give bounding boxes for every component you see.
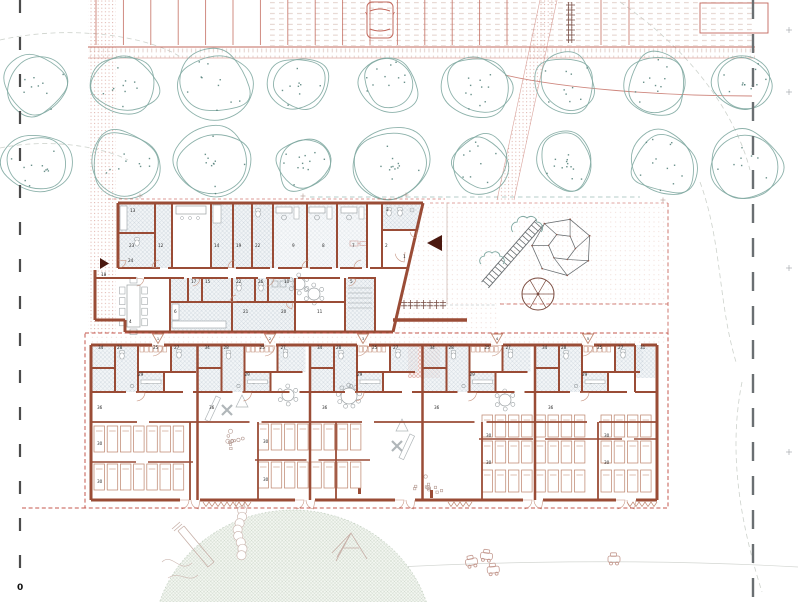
toys-cluster — [226, 429, 244, 450]
room-number-label: 18 — [101, 272, 107, 277]
room-number-label: 31 — [640, 345, 646, 350]
cot-icon — [258, 462, 269, 488]
toilet-icon — [177, 350, 182, 358]
tree-row-2 — [0, 125, 784, 199]
cot-icon — [574, 470, 585, 492]
room-number-label: 4 — [129, 319, 132, 324]
toilet-icon — [135, 238, 140, 246]
cot-icon — [535, 441, 546, 463]
cot-icon — [614, 415, 625, 437]
parking-paving — [268, 0, 755, 46]
cot-icon — [548, 470, 559, 492]
cot-icon — [107, 464, 118, 490]
room-number-label: 25 — [597, 345, 603, 350]
room-number-label: 34 — [205, 345, 211, 350]
room-number-label: 1 — [157, 337, 159, 341]
cot-icon — [107, 426, 118, 452]
cot-icon — [311, 462, 322, 488]
room-number-label: 25 — [372, 345, 378, 350]
cot-icon — [561, 415, 572, 437]
room-number-label: 29 — [245, 372, 251, 377]
room-number-label: 17 — [191, 279, 197, 284]
room-number-label: 6 — [174, 309, 177, 314]
room-number-label: 30 — [97, 441, 103, 446]
flag-garlands — [203, 502, 657, 507]
room-number-label: 22 — [236, 279, 242, 284]
room-number-label: 1 — [403, 254, 406, 259]
cot-icon — [627, 415, 638, 437]
room-number-label: 28 — [224, 345, 230, 350]
toilet-icon — [508, 350, 513, 358]
toy-car-icon — [487, 563, 500, 576]
cot-icon — [284, 424, 295, 450]
room-number-label: 22 — [255, 243, 261, 248]
room-number-label: 28 — [336, 345, 342, 350]
cot-icon — [147, 426, 158, 452]
toy-car-icon — [464, 554, 478, 568]
tree-icon — [631, 129, 697, 194]
toilet-icon — [451, 351, 456, 359]
site-plan-drawing: 1234513231214192298732124181715222610621… — [0, 0, 800, 602]
tree-icon — [4, 54, 68, 117]
cot-icon — [614, 441, 625, 463]
room-number-label: 19 — [236, 243, 242, 248]
room-number-label: 36 — [434, 405, 440, 410]
toilet-icon — [256, 209, 261, 217]
room-number-label: 2 — [385, 243, 388, 248]
tree-icon — [358, 58, 418, 112]
room-number-label: 25 — [153, 345, 159, 350]
cot-icon — [337, 462, 348, 488]
cot-icon — [298, 424, 309, 450]
room-number-label: 27 — [506, 345, 512, 350]
tree-icon — [537, 131, 591, 192]
cot-icon — [173, 426, 184, 452]
cot-icon — [641, 441, 652, 463]
room-number-label: 12 — [158, 243, 164, 248]
cot-icon — [627, 441, 638, 463]
toilet-icon — [226, 351, 231, 359]
cot-icon — [311, 424, 322, 450]
cot-icon — [561, 441, 572, 463]
room-number-label: 3 — [362, 337, 364, 341]
room-number-label: 36 — [97, 405, 103, 410]
cot-icon — [535, 470, 546, 492]
play-triangle — [396, 419, 408, 431]
room-number-label: 30 — [604, 460, 610, 465]
play-cross — [222, 405, 232, 415]
room-number-label: 28 — [117, 345, 123, 350]
room-number-label: 36 — [322, 405, 328, 410]
room-number-label: 30 — [97, 479, 103, 484]
cot-icon — [535, 415, 546, 437]
toilet-icon — [621, 350, 626, 358]
cot-icon — [522, 470, 533, 492]
cot-icon — [548, 415, 559, 437]
play-cross — [392, 441, 402, 451]
room-number-label: 25 — [485, 345, 491, 350]
cot-icon — [350, 462, 361, 488]
cot-icon — [508, 470, 519, 492]
cot-icon — [298, 462, 309, 488]
room-number-label: 34 — [98, 345, 104, 350]
toilet-icon — [259, 283, 264, 291]
room-number-label: 26 — [258, 279, 264, 284]
play-triangle — [236, 395, 248, 407]
toilet-icon — [120, 351, 125, 359]
room-number-label: 29 — [357, 372, 363, 377]
cot-icon — [614, 470, 625, 492]
cot-icon — [548, 441, 559, 463]
room-number-label: 14 — [214, 243, 220, 248]
level-marks — [786, 27, 792, 455]
room-number-label: 34 — [542, 345, 548, 350]
mound-playground — [153, 499, 620, 602]
tree-icon — [711, 128, 784, 198]
cot-icon — [324, 462, 335, 488]
cot-icon — [160, 426, 171, 452]
cot-icon — [160, 464, 171, 490]
room-number-label: 29 — [138, 372, 144, 377]
tree-icon — [267, 59, 329, 110]
room-number-label: 29 — [582, 372, 588, 377]
room-number-label: 10 — [284, 279, 290, 284]
toilet-icon — [398, 208, 403, 216]
cot-icon — [324, 424, 335, 450]
room-number-label: 28 — [561, 345, 567, 350]
site-plan-page: 1234513231214192298732124181715222610621… — [0, 0, 800, 602]
cot-icon — [147, 464, 158, 490]
cot-icon — [271, 424, 282, 450]
cot-icon — [134, 426, 145, 452]
room-number-label: 7 — [352, 243, 355, 248]
cot-icon — [350, 424, 361, 450]
room-number-label: 21 — [243, 309, 249, 314]
cot-icon — [522, 441, 533, 463]
toy-car-icon — [608, 553, 620, 565]
room-number-label: 30 — [486, 460, 492, 465]
room-number-label: 3 — [386, 207, 389, 212]
room-number-label: 34 — [430, 345, 436, 350]
tree-icon — [173, 125, 251, 197]
cot-icon — [561, 470, 572, 492]
tree-icon — [711, 56, 772, 110]
contour-lines — [0, 2, 798, 592]
cot-icon — [495, 470, 506, 492]
room-number-label: 28 — [449, 345, 455, 350]
cot-icon — [495, 441, 506, 463]
cot-icon — [601, 470, 612, 492]
room-number-label: 5 — [350, 279, 353, 284]
tree-icon — [276, 139, 331, 191]
room-number-label: 13 — [130, 208, 136, 213]
room-number-label: 8 — [322, 243, 325, 248]
walkway-paving — [91, 333, 668, 344]
survey-ticks — [138, 193, 666, 203]
cot-icon — [120, 426, 130, 452]
room-number-label: 5 — [587, 337, 589, 341]
room-number-label: 27 — [393, 345, 399, 350]
tree-icon — [624, 51, 685, 115]
cot-icon — [574, 441, 585, 463]
room-number-label: 30 — [486, 433, 492, 438]
cot-icon — [271, 462, 282, 488]
room-number-label: 36 — [209, 405, 215, 410]
round-table — [278, 384, 298, 406]
play-rod — [399, 434, 415, 460]
toy-car-icon — [480, 549, 494, 563]
toilet-icon — [564, 351, 569, 359]
cot-icon — [522, 415, 533, 437]
room-number-label: 36 — [548, 405, 554, 410]
room-number-label: 30 — [263, 477, 269, 482]
toilet-icon — [283, 350, 288, 358]
cot-icon — [508, 441, 519, 463]
room-number-label: 2 — [269, 337, 271, 341]
cot-icon — [94, 426, 105, 452]
room-number-label: 20 — [281, 309, 287, 314]
parking-area — [88, 0, 768, 58]
scale-origin-label: 0 — [17, 583, 23, 593]
room-number-label: 11 — [317, 309, 323, 314]
cot-icon — [173, 464, 184, 490]
room-number-label: 23 — [129, 243, 135, 248]
cot-icon — [641, 415, 652, 437]
room-number-label: 24 — [128, 258, 134, 263]
cot-icon — [627, 470, 638, 492]
room-number-label: 27 — [281, 345, 287, 350]
room-number-label: 15 — [205, 279, 211, 284]
cot-icon — [495, 415, 506, 437]
cot-icon — [120, 464, 130, 490]
cot-icon — [574, 415, 585, 437]
room-number-label: 30 — [604, 433, 610, 438]
room-number-label: 9 — [292, 243, 295, 248]
room-number-label: 25 — [260, 345, 266, 350]
room-number-label: 34 — [317, 345, 323, 350]
cot-icon — [94, 464, 105, 490]
tree-icon — [177, 48, 253, 120]
tree-row-1 — [4, 48, 772, 120]
tree-icon — [353, 128, 430, 200]
toilet-icon — [339, 351, 344, 359]
cot-icon — [134, 464, 145, 490]
tree-icon — [441, 57, 513, 118]
cot-icon — [284, 462, 295, 488]
toilet-icon — [396, 350, 401, 358]
room-number-label: 27 — [618, 345, 624, 350]
toys-cluster — [413, 475, 442, 494]
cot-icon — [641, 470, 652, 492]
playground-paving — [393, 203, 668, 333]
cots — [94, 415, 651, 492]
cot-icon — [508, 415, 519, 437]
cot-icon — [482, 470, 493, 492]
cot-icon — [258, 424, 269, 450]
toilet-icon — [237, 283, 242, 291]
room-number-label: 27 — [174, 345, 180, 350]
room-number-label: 29 — [470, 372, 476, 377]
room-number-label: 30 — [263, 439, 269, 444]
cot-icon — [337, 424, 348, 450]
